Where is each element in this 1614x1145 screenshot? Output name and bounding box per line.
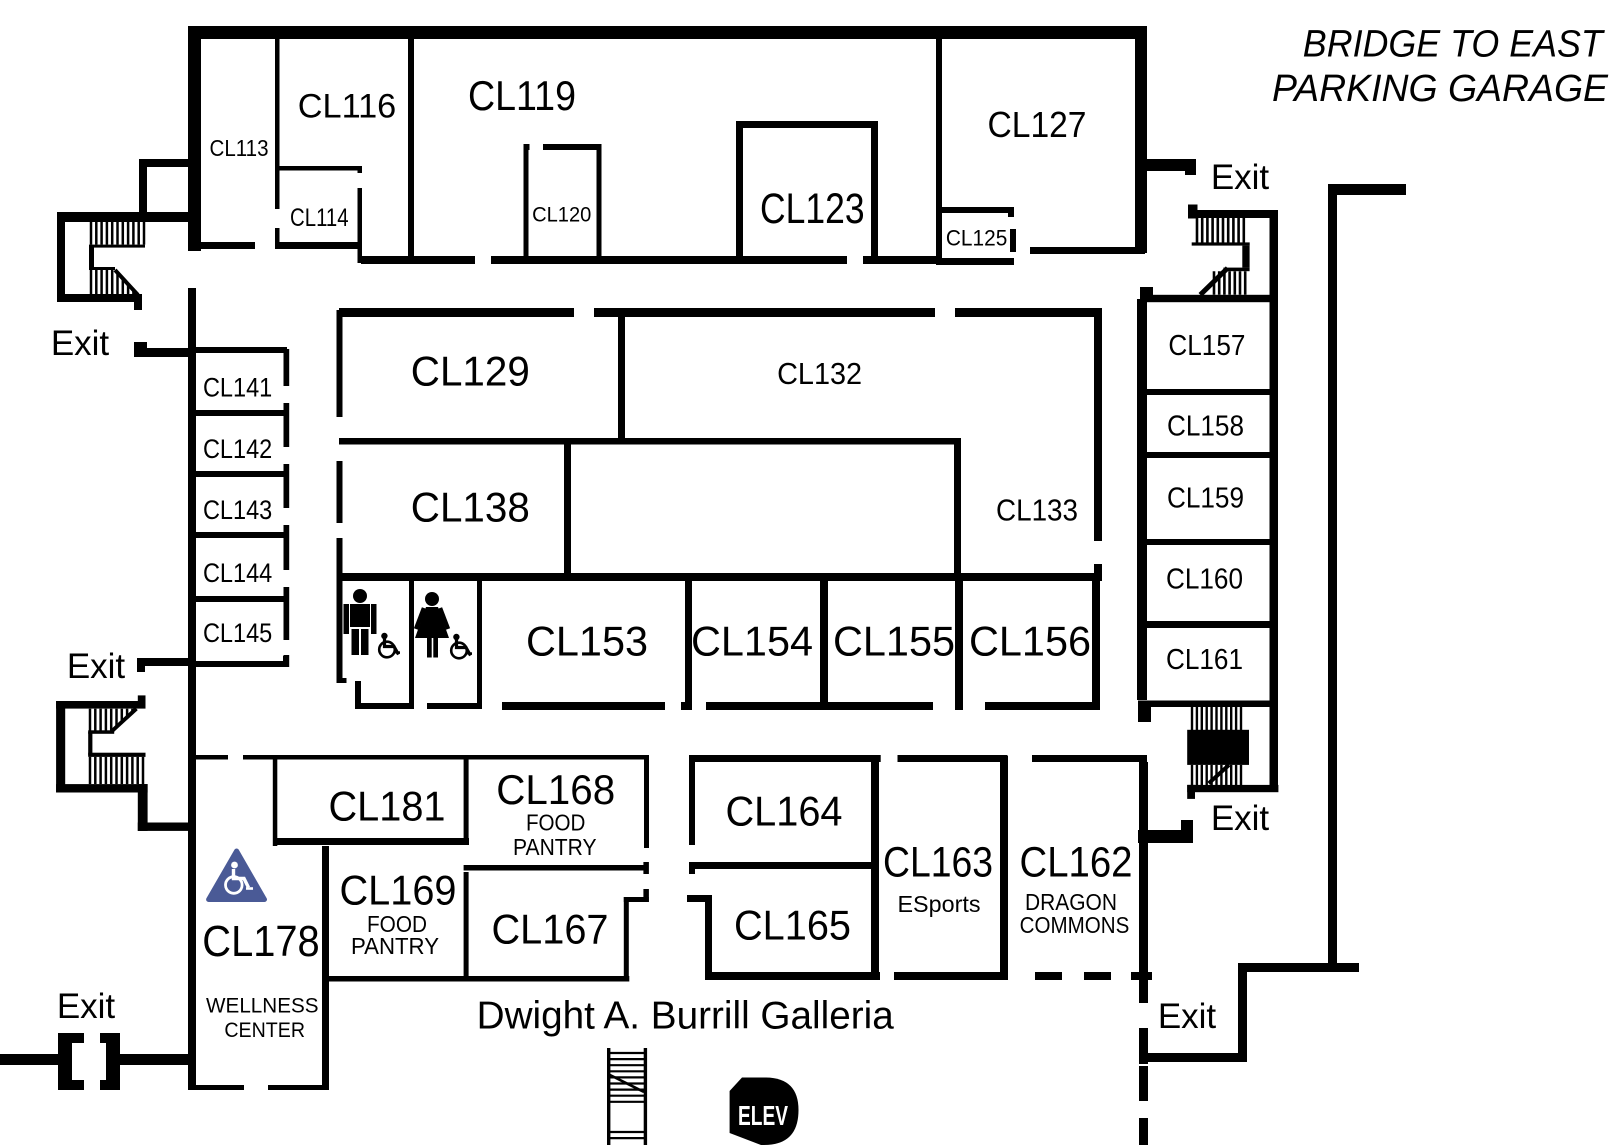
svg-text:CL164: CL164: [726, 788, 843, 835]
svg-text:Dwight A. Burrill Galleria: Dwight A. Burrill Galleria: [477, 994, 895, 1037]
svg-text:CL133: CL133: [996, 494, 1078, 528]
svg-text:CL138: CL138: [411, 483, 530, 530]
svg-text:Exit: Exit: [67, 647, 126, 686]
svg-text:PANTRY: PANTRY: [513, 834, 597, 860]
svg-text:CL123: CL123: [760, 185, 865, 233]
svg-text:CL143: CL143: [203, 495, 272, 525]
svg-text:CL155: CL155: [833, 618, 955, 665]
svg-text:CL127: CL127: [988, 104, 1087, 145]
svg-text:CL153: CL153: [526, 618, 648, 665]
svg-text:PANTRY: PANTRY: [351, 933, 439, 959]
svg-text:CL161: CL161: [1166, 644, 1243, 676]
svg-text:CL141: CL141: [203, 372, 272, 402]
svg-text:CL157: CL157: [1168, 330, 1245, 362]
svg-text:CL145: CL145: [203, 618, 272, 648]
svg-text:PARKING GARAGE: PARKING GARAGE: [1272, 68, 1609, 110]
svg-text:CL156: CL156: [969, 618, 1091, 665]
svg-text:CL181: CL181: [329, 782, 446, 829]
svg-text:CL144: CL144: [203, 558, 272, 588]
svg-text:CL158: CL158: [1167, 411, 1244, 443]
svg-text:CL162: CL162: [1020, 838, 1133, 886]
svg-text:CL154: CL154: [691, 618, 813, 665]
svg-text:CL178: CL178: [202, 918, 319, 966]
svg-text:CL114: CL114: [290, 204, 349, 232]
svg-text:FOOD: FOOD: [526, 809, 586, 835]
svg-text:COMMONS: COMMONS: [1020, 912, 1130, 938]
svg-text:CL125: CL125: [946, 225, 1007, 250]
svg-text:CENTER: CENTER: [224, 1019, 305, 1042]
svg-text:ELEV: ELEV: [738, 1100, 788, 1131]
svg-text:BRIDGE TO EAST: BRIDGE TO EAST: [1303, 24, 1606, 66]
svg-text:CL167: CL167: [492, 905, 609, 952]
svg-text:CL142: CL142: [203, 434, 272, 464]
svg-text:CL120: CL120: [532, 203, 591, 227]
svg-text:CL132: CL132: [777, 357, 862, 391]
svg-text:WELLNESS: WELLNESS: [206, 995, 319, 1018]
svg-text:CL160: CL160: [1166, 564, 1243, 596]
svg-text:ESports: ESports: [898, 891, 981, 917]
svg-text:CL159: CL159: [1167, 483, 1244, 515]
svg-text:CL163: CL163: [883, 838, 993, 886]
svg-text:CL116: CL116: [298, 88, 397, 126]
svg-text:CL168: CL168: [496, 766, 615, 813]
svg-text:CL165: CL165: [734, 901, 851, 948]
svg-text:Exit: Exit: [1211, 158, 1270, 197]
svg-text:CL113: CL113: [210, 135, 269, 161]
svg-text:Exit: Exit: [57, 987, 116, 1026]
svg-text:Exit: Exit: [51, 324, 110, 363]
svg-text:Exit: Exit: [1158, 997, 1217, 1036]
svg-text:CL169: CL169: [340, 866, 457, 913]
svg-text:Exit: Exit: [1211, 799, 1270, 838]
svg-text:CL119: CL119: [468, 72, 576, 119]
svg-text:CL129: CL129: [411, 348, 530, 395]
